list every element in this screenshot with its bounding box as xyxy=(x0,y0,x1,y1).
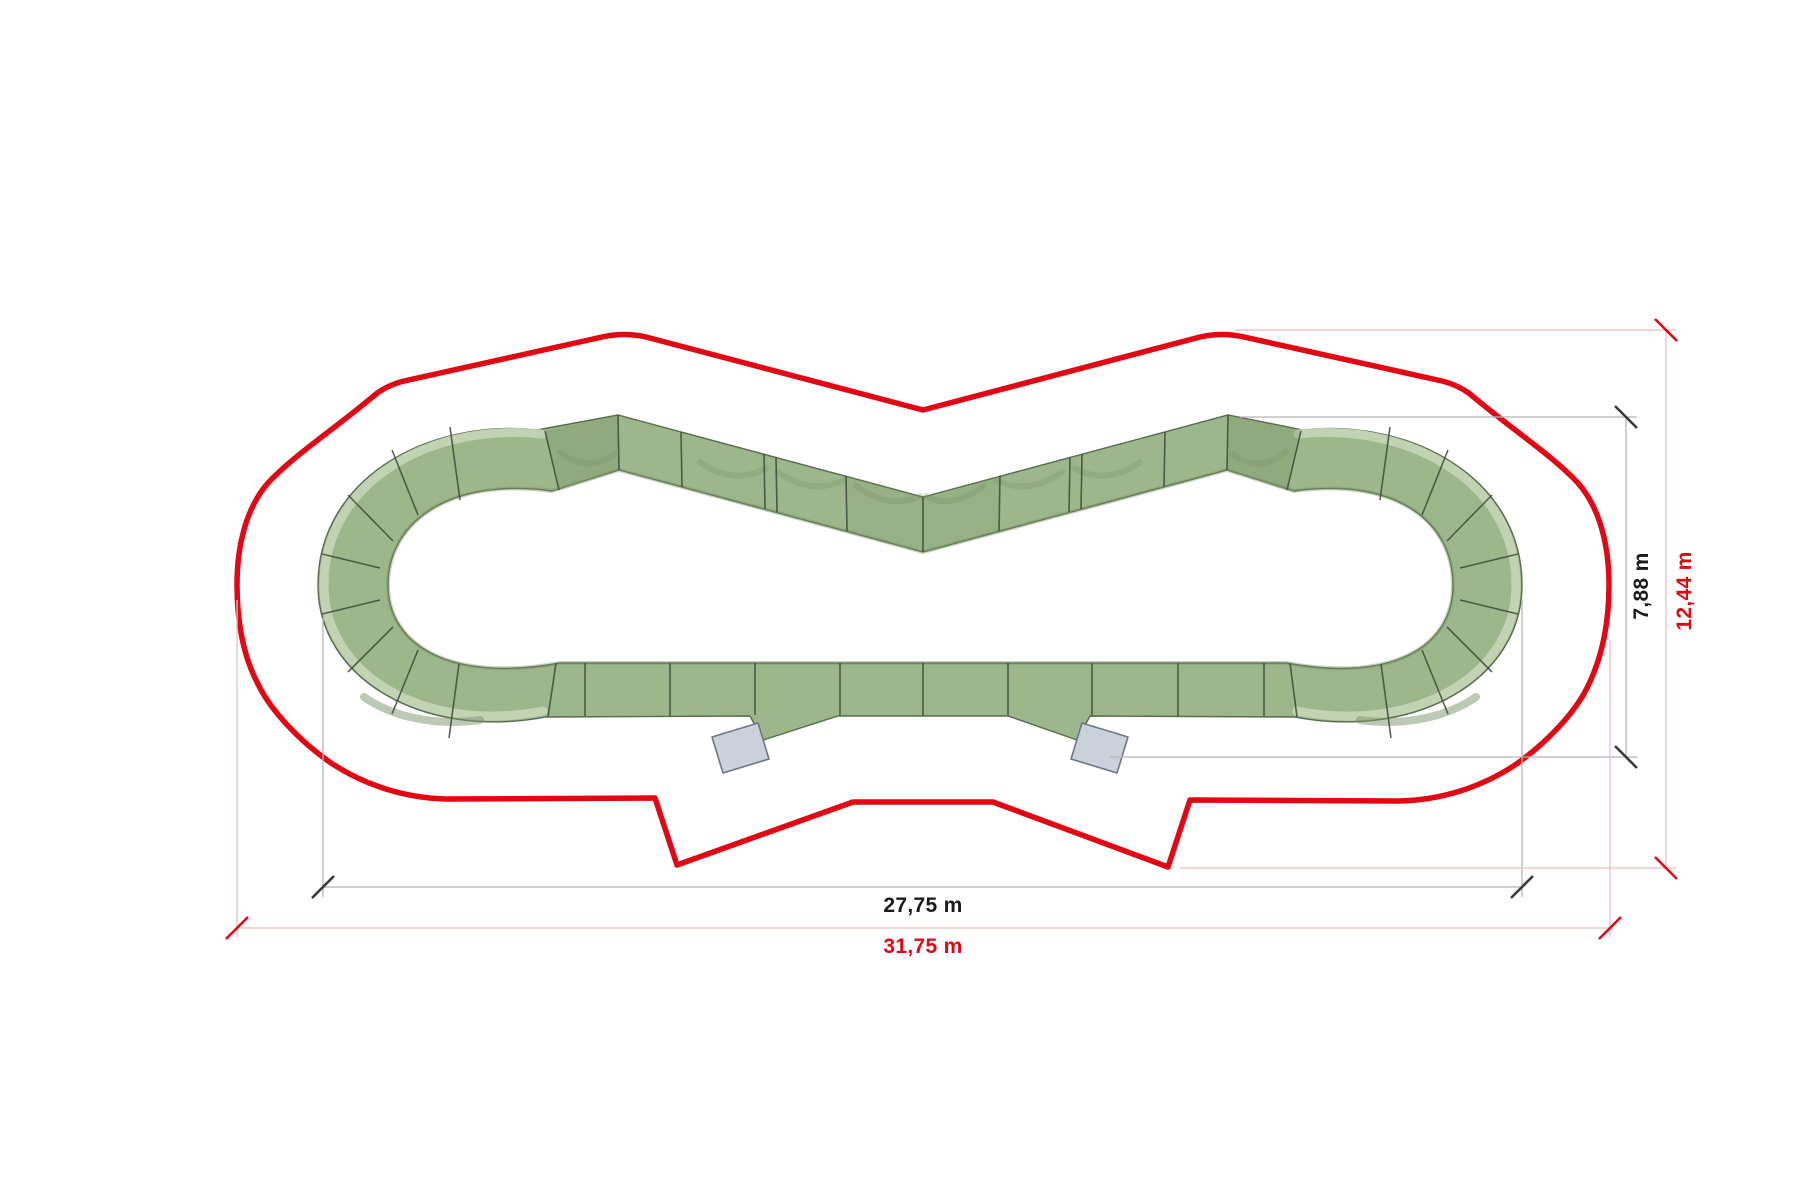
dim-track-depth-label: 7,88 m xyxy=(1630,552,1653,619)
start-ramp-right xyxy=(1071,723,1128,773)
start-ramp-left xyxy=(712,723,769,773)
pump-track-plan: 27,75 m 7,88 m 31,75 m 12,44 m xyxy=(0,0,1800,1200)
track-surface xyxy=(318,415,1522,740)
dark-segment-valley-right xyxy=(923,476,1000,552)
safety-zone-path xyxy=(237,335,1609,868)
plan-drawing: 27,75 m 7,88 m 31,75 m 12,44 m xyxy=(0,0,1800,1200)
pump-track xyxy=(318,415,1522,740)
dim-zone-depth-label: 12,44 m xyxy=(1673,551,1696,630)
safety-zone-outline xyxy=(237,335,1609,868)
dim-track-width-label: 27,75 m xyxy=(883,894,962,917)
dim-zone-width-label: 31,75 m xyxy=(883,935,962,958)
